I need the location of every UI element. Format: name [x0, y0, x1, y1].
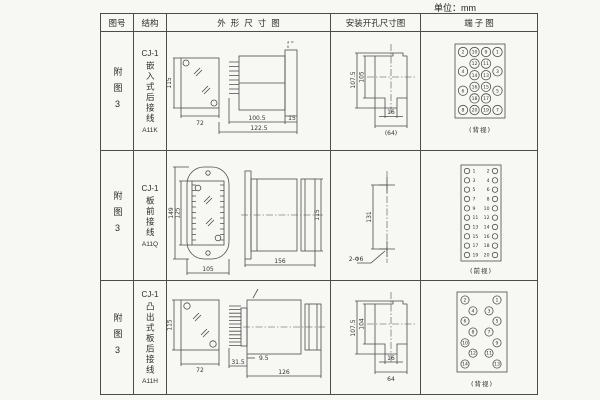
fig-no-cell-a11h: 附图3 [101, 281, 134, 394]
header-mounting: 安装开孔尺寸图 [331, 14, 421, 32]
front-view [181, 300, 219, 350]
structure-cell-a11k: CJ-1 嵌入式后接线 A11K [134, 32, 167, 151]
dim-label: 104 [359, 318, 366, 330]
svg-text:16: 16 [484, 234, 490, 240]
terminal-caption: (背视) [471, 379, 493, 388]
svg-text:11: 11 [473, 215, 479, 221]
front-view [187, 167, 229, 259]
dim-label: 9.5 [259, 355, 269, 362]
header-structure-label: 结构 [141, 17, 158, 29]
fig-no-cell-a11k: 附图3 [101, 32, 134, 151]
model-a11k: CJ-1 [142, 49, 159, 58]
svg-text:10: 10 [484, 206, 490, 212]
svg-text:14: 14 [484, 225, 490, 231]
fig-no-cell-a11q: 附图3 [101, 151, 134, 281]
structure-cell-a11h: CJ-1 凸出式板后接线 A11H [134, 281, 167, 394]
svg-text:9: 9 [496, 340, 499, 346]
svg-text:6: 6 [462, 88, 465, 94]
fig-no-a11h: 附图3 [113, 313, 122, 362]
outline-drawing-a11h: 115 72 31.5 9.5 126 [167, 282, 330, 394]
terminal-cell-a11h: 2610144812371115913 (背视) [421, 281, 537, 394]
mounting-drawing-a11k: 107.5 105 16 (64) [331, 32, 420, 150]
structure-a11q: 板前接线 [146, 196, 155, 238]
svg-text:1: 1 [473, 169, 476, 175]
dim-label: 16 [387, 355, 395, 362]
side-view [241, 171, 323, 259]
svg-text:12: 12 [484, 215, 490, 221]
dim-label: 131 [366, 211, 373, 223]
dim-label: 115 [167, 77, 173, 89]
header-terminal-label: 端子图 [462, 17, 496, 29]
dim-label: 31.5 [231, 359, 245, 366]
svg-text:8: 8 [462, 108, 465, 114]
dim-label: 16 [387, 109, 395, 116]
spec-table: 图号 结构 外形尺寸图 安装开孔尺寸图 端子图 附图3 CJ-1 嵌入式后接线 … [100, 13, 538, 395]
dim-label: 105 [202, 266, 214, 273]
svg-text:13: 13 [483, 73, 489, 79]
svg-text:1: 1 [496, 50, 499, 56]
header-structure: 结构 [134, 14, 167, 32]
front-view [181, 58, 219, 108]
svg-text:12: 12 [470, 350, 476, 356]
terminal-caption: (前视) [470, 266, 492, 275]
outline-cell-a11k: 115 72 100.5 15 122.5 [167, 32, 331, 151]
dim-label: 64 [387, 376, 395, 383]
dim-label: 15 [288, 115, 296, 122]
outline-drawing-a11k: 115 72 100.5 15 122.5 [167, 32, 330, 150]
svg-text:15: 15 [473, 234, 479, 240]
svg-text:18: 18 [484, 243, 490, 249]
svg-text:3: 3 [473, 178, 476, 184]
dim-label: 156 [274, 258, 286, 265]
svg-text:5: 5 [496, 318, 499, 324]
header-mounting-label: 安装开孔尺寸图 [346, 17, 406, 29]
outline-drawing-a11q: 149 125 105 115 156 [167, 151, 330, 280]
dim-label: 126 [278, 369, 290, 376]
svg-text:9: 9 [485, 50, 488, 56]
code-a11k: A11K [142, 127, 157, 134]
svg-text:7: 7 [496, 108, 499, 114]
svg-text:17: 17 [483, 96, 489, 102]
model-a11q: CJ-1 [142, 184, 159, 193]
mounting-cell-a11k: 107.5 105 16 (64) [331, 32, 421, 151]
svg-text:19: 19 [473, 253, 479, 259]
terminal-caption: (背视) [469, 125, 491, 134]
mounting-drawing-a11q: 131 2-Φ6 [331, 151, 420, 280]
terminal-block [461, 165, 501, 261]
dim-label: 107.5 [350, 319, 357, 336]
svg-text:14: 14 [472, 73, 478, 79]
dim-label: 2-Φ6 [349, 256, 364, 263]
terminal-circles: 1357911131517192468101214161820 [464, 168, 497, 258]
svg-text:3: 3 [488, 308, 491, 314]
svg-text:10: 10 [462, 340, 468, 346]
terminal-diagram-a11h: 2610144812371115913 (背视) [421, 282, 537, 394]
svg-text:3: 3 [496, 69, 499, 75]
svg-text:20: 20 [472, 108, 478, 114]
svg-text:2: 2 [464, 297, 467, 303]
svg-text:13: 13 [473, 225, 479, 231]
svg-text:7: 7 [488, 329, 491, 335]
svg-text:15: 15 [483, 84, 489, 90]
svg-text:20: 20 [484, 253, 490, 259]
svg-text:4: 4 [462, 69, 465, 75]
mounting-cell-a11h: 107.5 104 16 64 [331, 281, 421, 394]
code-a11h: A11H [142, 378, 158, 385]
code-a11q: A11Q [142, 241, 158, 248]
svg-text:13: 13 [494, 361, 500, 367]
header-outline: 外形尺寸图 [167, 14, 331, 32]
header-fig-no: 图号 [101, 14, 134, 32]
dim-label: 115 [167, 319, 174, 331]
header-outline-label: 外形尺寸图 [212, 17, 285, 29]
model-a11h: CJ-1 [142, 290, 159, 299]
svg-text:11: 11 [486, 350, 492, 356]
svg-text:6: 6 [487, 187, 490, 193]
svg-text:17: 17 [473, 243, 479, 249]
outline-cell-a11h: 115 72 31.5 9.5 126 [167, 281, 331, 394]
dim-label: 125 [175, 207, 182, 219]
datasheet-page: 单位：mm 图号 结构 外形尺寸图 安装开孔尺寸图 端子图 附图3 CJ-1 嵌… [0, 0, 600, 400]
terminal-cell-a11q: 1357911131517192468101214161820 (前视) [421, 151, 537, 281]
terminal-circles: 2468101214161820911131517191357 [458, 47, 502, 114]
side-view [229, 42, 297, 116]
svg-text:9: 9 [473, 206, 476, 212]
svg-text:1: 1 [496, 297, 499, 303]
structure-cell-a11q: CJ-1 板前接线 A11Q [134, 151, 167, 281]
svg-text:2: 2 [462, 50, 465, 56]
dim-label: 107.5 [350, 71, 357, 88]
dim-label: 122.5 [250, 125, 267, 132]
svg-text:14: 14 [462, 361, 468, 367]
dim-label: 115 [314, 209, 321, 221]
dim-label: 72 [196, 120, 204, 127]
svg-text:18: 18 [472, 96, 478, 102]
svg-text:8: 8 [487, 197, 490, 203]
svg-text:5: 5 [473, 187, 476, 193]
dim-label: (64) [385, 130, 397, 137]
dim-label: 72 [196, 367, 204, 374]
dim-label: 100.5 [248, 115, 265, 122]
terminal-diagram-a11q: 1357911131517192468101214161820 (前视) [421, 151, 537, 280]
svg-text:7: 7 [473, 197, 476, 203]
svg-text:11: 11 [483, 61, 489, 67]
mounting-cell-a11q: 131 2-Φ6 [331, 151, 421, 281]
terminal-cell-a11k: 2468101214161820911131517191357 (背视) [421, 32, 537, 151]
svg-text:5: 5 [496, 88, 499, 94]
mounting-drawing-a11h: 107.5 104 16 64 [331, 282, 420, 394]
structure-a11h: 凸出式板后接线 [146, 302, 155, 376]
header-fig-no-label: 图号 [108, 17, 125, 29]
side-view [229, 289, 325, 354]
svg-text:4: 4 [487, 178, 490, 184]
svg-text:16: 16 [472, 84, 478, 90]
svg-text:2: 2 [487, 169, 490, 175]
outline-cell-a11q: 149 125 105 115 156 [167, 151, 331, 281]
svg-text:4: 4 [472, 308, 475, 314]
dim-label: 105 [359, 71, 366, 83]
terminal-diagram-a11k: 2468101214161820911131517191357 (背视) [421, 32, 537, 150]
fig-no-a11k: 附图3 [113, 67, 122, 116]
svg-text:12: 12 [472, 61, 478, 67]
terminal-circles: 2610144812371115913 [461, 295, 501, 367]
svg-text:19: 19 [483, 108, 489, 114]
header-terminal: 端子图 [421, 14, 537, 32]
svg-text:6: 6 [464, 318, 467, 324]
structure-a11k: 嵌入式后接线 [146, 61, 155, 124]
fig-no-a11q: 附图3 [113, 191, 122, 240]
svg-text:10: 10 [472, 50, 478, 56]
svg-text:8: 8 [472, 329, 475, 335]
